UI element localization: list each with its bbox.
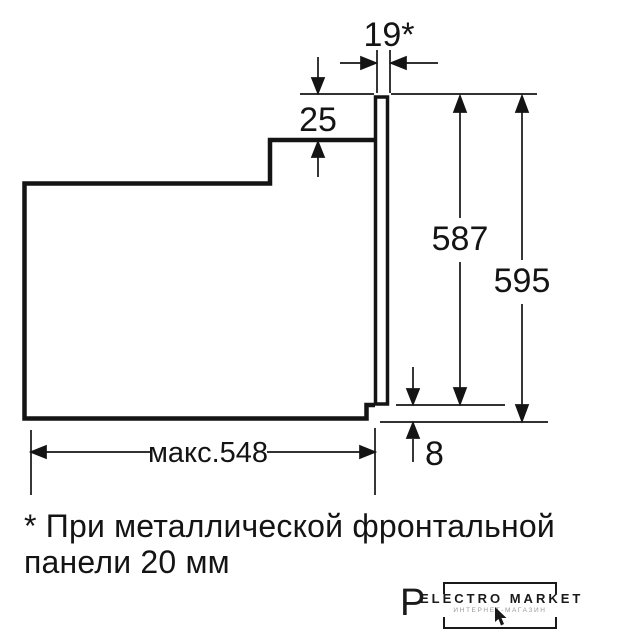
arrow-up-icon [516,96,528,112]
logo-frame-right-bottom [555,617,557,629]
footnote-line-2: панели 20 мм [24,544,555,580]
cursor-icon [494,607,509,627]
logo-frame-top [443,582,557,584]
dim-bottom-clearance [407,367,419,462]
label-front-panel-thickness: 19* [363,16,414,54]
arrow-down-icon [516,405,528,421]
arrow-down-icon [407,389,419,404]
label-body-height: 587 [432,220,489,258]
electro-market-watermark: P ELECTRO MARKET ИНТЕРНЕТ-МАГАЗИН [396,580,568,634]
dim-total-height [516,96,528,421]
oven-body-outline [25,140,376,419]
label-bottom-clearance: 8 [425,435,444,473]
arrow-right-icon [360,446,375,458]
arrow-left-icon [391,57,406,69]
arrow-right-icon [361,57,376,69]
arrow-left-icon [31,446,46,458]
arrow-up-icon [312,142,324,157]
logo-frame-left-bottom [443,617,445,629]
label-total-height: 595 [494,262,551,300]
diagram-canvas: 19* 25 587 595 8 макс.548 * При металлич… [0,0,623,640]
arrow-down-icon [312,78,324,93]
logo-frame-bottom [443,627,557,629]
arrow-down-icon [454,388,466,404]
dim-front-panel-thickness [340,50,438,93]
oven-front-panel [376,97,388,404]
arrow-up-icon [407,423,419,438]
watermark-brand: ELECTRO MARKET [420,591,580,606]
label-max-depth: макс.548 [148,437,268,469]
footnote: * При металлической фронтальной панели 2… [24,508,555,580]
arrow-up-icon [454,96,466,112]
label-top-clearance: 25 [299,101,337,139]
footnote-line-1: * При металлической фронтальной [24,508,555,544]
